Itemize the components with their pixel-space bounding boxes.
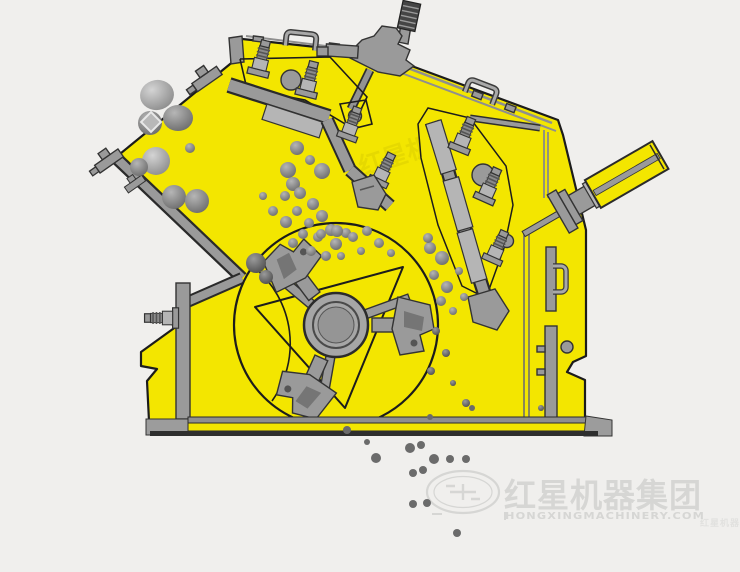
corner-watermark: 红星机器 [700,517,740,529]
base-frame [146,416,612,436]
rotor-hub [304,293,368,357]
impact-crusher-diagram: 红星机器集团 HONGXINGMACHINERY.COM 红星机器 红星机器 [0,0,740,572]
left-wall-liner [176,283,190,419]
wall-hole [561,341,573,353]
watermark-brand-en: HONGXINGMACHINERY.COM [505,511,705,522]
watermark-brand-cn: 红星机器集团 [504,476,702,515]
pivot-hole [281,70,301,90]
cover-end-cap [229,36,244,64]
rotor [234,223,438,427]
